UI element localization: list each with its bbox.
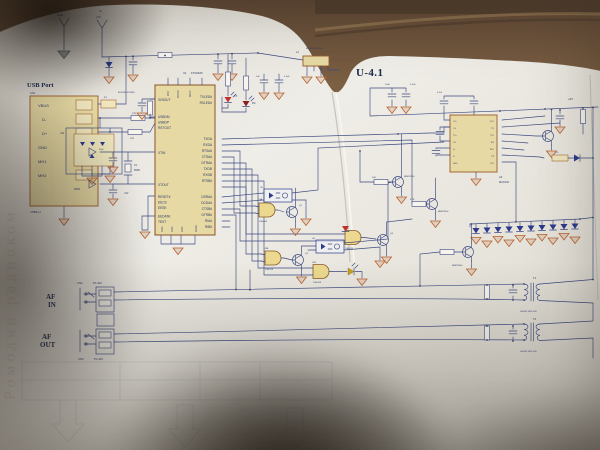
ic-pin: EEDATA xyxy=(158,215,171,219)
ic-pin: T1I xyxy=(491,128,494,130)
usb-pin-label: MH1 xyxy=(38,159,47,164)
resistor-value: 27R xyxy=(132,113,136,115)
ic-pin: VCC xyxy=(167,91,170,96)
sheet-title: U-4.1 xyxy=(356,67,383,79)
usb-port-heading: USB Port xyxy=(27,82,54,89)
ic-pin: T2I xyxy=(491,156,494,158)
ic-pin: R1I xyxy=(491,142,495,144)
usb-pin-label: D+ xyxy=(42,131,48,136)
gate-ref: U3A xyxy=(258,198,263,201)
transformer-part: LM-NP-1001-B1L xyxy=(520,311,538,313)
ic-ref: U1 xyxy=(183,71,187,75)
ic-pin: RTSA# xyxy=(202,149,212,153)
ic-pin: RXDA xyxy=(203,143,213,147)
ic-pin: USBDM xyxy=(158,115,170,119)
ic-pin: GND xyxy=(181,226,184,232)
cap-value: 33pF xyxy=(99,149,104,151)
photo-of-schematic: U-4.1 J1 GND J2 +5V 1uF 0.1uF USB P xyxy=(0,0,600,450)
ferrite-part: BLM21BD102SN1D xyxy=(118,92,135,94)
ic-pin: AGND xyxy=(195,225,198,232)
transistor-part: MMBT3904 xyxy=(404,176,415,178)
ic-pin: VCC xyxy=(490,121,495,123)
ic-part: MAX232 xyxy=(499,180,510,184)
ic-part: FT2232D xyxy=(191,71,203,75)
net-label-5v: +5V xyxy=(124,192,129,195)
ic-pin: R1O xyxy=(490,149,495,151)
net-label-5v: +5V xyxy=(568,97,573,101)
cap-value: 0.1uF xyxy=(284,76,290,78)
connector-part: USBB-1J xyxy=(30,210,41,214)
ic-pin: C2- xyxy=(453,142,457,144)
jack-part: PJ-313 xyxy=(94,357,103,361)
tp-net: +5V xyxy=(96,15,101,19)
af-out-label-2: OUT xyxy=(40,341,56,349)
usb-pin-label: VBUS xyxy=(38,103,49,108)
resistor-value: 27R xyxy=(130,138,134,140)
esd-part: SR05 xyxy=(74,188,81,191)
af-in-label-1: AF xyxy=(46,293,55,301)
ic-pin: RIA# xyxy=(205,219,212,223)
ic-pin: CTSA# xyxy=(202,155,213,159)
ic-pin: VCCIO xyxy=(177,90,180,98)
transistor-part: MMBT3904 xyxy=(452,265,463,267)
ic-pin: EECS xyxy=(158,201,167,205)
ic-pin: CTSB# xyxy=(202,207,213,211)
gate-ref: U3C xyxy=(312,262,317,264)
crystal-value: 6MHz xyxy=(134,169,141,172)
jack-ref: CN3 xyxy=(78,357,84,361)
led-label-rx: RX xyxy=(252,101,256,105)
transistor-part: MMBT3904 xyxy=(438,211,449,213)
ic-pin: V- xyxy=(453,156,455,158)
usb-pin-label: MH2 xyxy=(38,173,47,178)
ic-pin: DCDA# xyxy=(201,201,212,205)
ic-pin: RTSB# xyxy=(202,179,212,183)
schematic-drawing: U-4.1 J1 GND J2 +5V 1uF 0.1uF USB P xyxy=(0,0,600,450)
ic-pin: TEST xyxy=(158,220,166,224)
ic-pin: GND xyxy=(161,226,164,232)
transformer-part: LM-NP-1001-B1L xyxy=(520,351,538,353)
ic-pin: RXDB xyxy=(203,173,212,177)
cap-value: 1uF xyxy=(256,76,260,78)
resistor-value: 10K xyxy=(372,177,376,179)
esd-ref: U11 xyxy=(60,132,65,135)
ic-pin: EESK xyxy=(158,206,167,210)
gate-part: 74HC08 xyxy=(265,269,274,271)
ic-pin: RSTOUT xyxy=(158,126,171,130)
resistor-value: 4.7K xyxy=(410,199,415,201)
ic-pin: RXLED# xyxy=(200,101,213,105)
ic-pin: TXDB xyxy=(203,167,212,171)
ic-pin: T2O xyxy=(490,163,494,165)
led-label-tx: TX xyxy=(234,94,238,98)
ic-pin: GND xyxy=(171,226,174,232)
ic-pin: RIB# xyxy=(205,225,212,229)
ferrite-part: BLM21BD102SN1D xyxy=(306,48,323,50)
ic-pin: TXLED# xyxy=(200,95,212,99)
ic-pin: XTIN xyxy=(158,151,166,155)
jack-ref: CN2 xyxy=(77,281,83,285)
ic-pin: RESET# xyxy=(158,195,171,199)
ic-pin: T1O xyxy=(490,135,494,137)
gate-part: 74HC08 xyxy=(313,282,322,284)
ic-pin: TXDA xyxy=(203,137,212,141)
cap-value: 0.1uF xyxy=(437,92,443,94)
ic-pin: C1- xyxy=(453,128,457,130)
ic-ref: U2 xyxy=(499,175,503,179)
usb-pin-label: D- xyxy=(42,117,47,122)
jack-part: PJ-313 xyxy=(93,281,102,285)
ic-pin: USBDP xyxy=(158,121,169,125)
ic-pin: DSRA# xyxy=(201,195,212,199)
ic-pin: DTRB# xyxy=(202,213,213,217)
ic-pin: GND xyxy=(453,163,458,165)
usb-pin-label: GND xyxy=(38,145,47,150)
af-out-label-1: AF xyxy=(42,333,51,341)
ic-pin: DTRA# xyxy=(202,161,213,165)
connector-ref: CN1 xyxy=(30,91,36,95)
gate-part: 74HC08 xyxy=(259,221,268,223)
ic-pin: AVCC xyxy=(189,90,192,97)
cap-value: 10uF xyxy=(385,84,391,86)
af-in-label-2: IN xyxy=(48,301,56,309)
gate-ref: U3B xyxy=(264,248,269,250)
cap-value: 0.1uF xyxy=(410,84,416,86)
ic-pin: 3V3OUT xyxy=(158,98,170,102)
tp-net: GND xyxy=(57,13,63,17)
ic-pin: XTOUT xyxy=(158,183,169,187)
